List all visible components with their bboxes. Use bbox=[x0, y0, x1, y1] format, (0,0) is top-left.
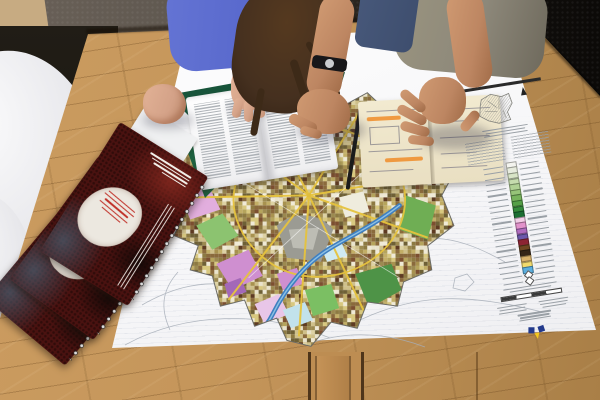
legend-text-column bbox=[510, 131, 551, 159]
north-arrow-icon bbox=[520, 87, 527, 96]
man-jeans bbox=[354, 0, 421, 54]
orange-highlight bbox=[367, 116, 401, 121]
watch-face bbox=[324, 58, 334, 68]
district-inset-map bbox=[472, 89, 519, 129]
woman-left-hand bbox=[143, 84, 186, 124]
photo-scene bbox=[0, 0, 600, 400]
cover-map-outline bbox=[67, 173, 153, 259]
legend-swatch-list bbox=[457, 154, 581, 281]
orange-highlight bbox=[385, 156, 423, 161]
sketch-box bbox=[369, 126, 400, 146]
handwriting-line bbox=[368, 148, 422, 152]
handwriting-line bbox=[369, 169, 413, 173]
